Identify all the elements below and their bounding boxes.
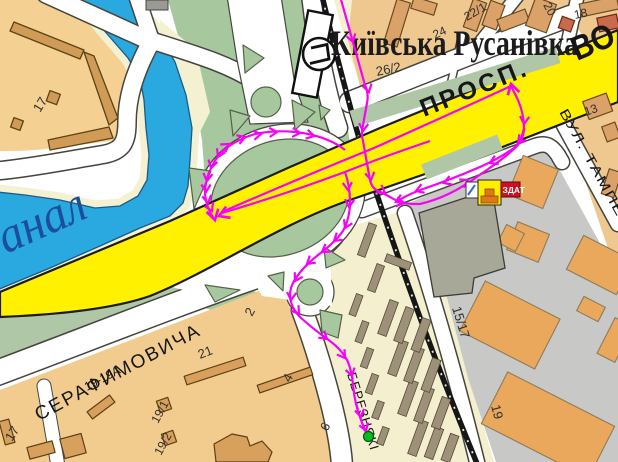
- svg-text:ЗДАТ: ЗДАТ: [503, 185, 526, 195]
- svg-text:Київська Русанівка: Київська Русанівка: [331, 23, 578, 63]
